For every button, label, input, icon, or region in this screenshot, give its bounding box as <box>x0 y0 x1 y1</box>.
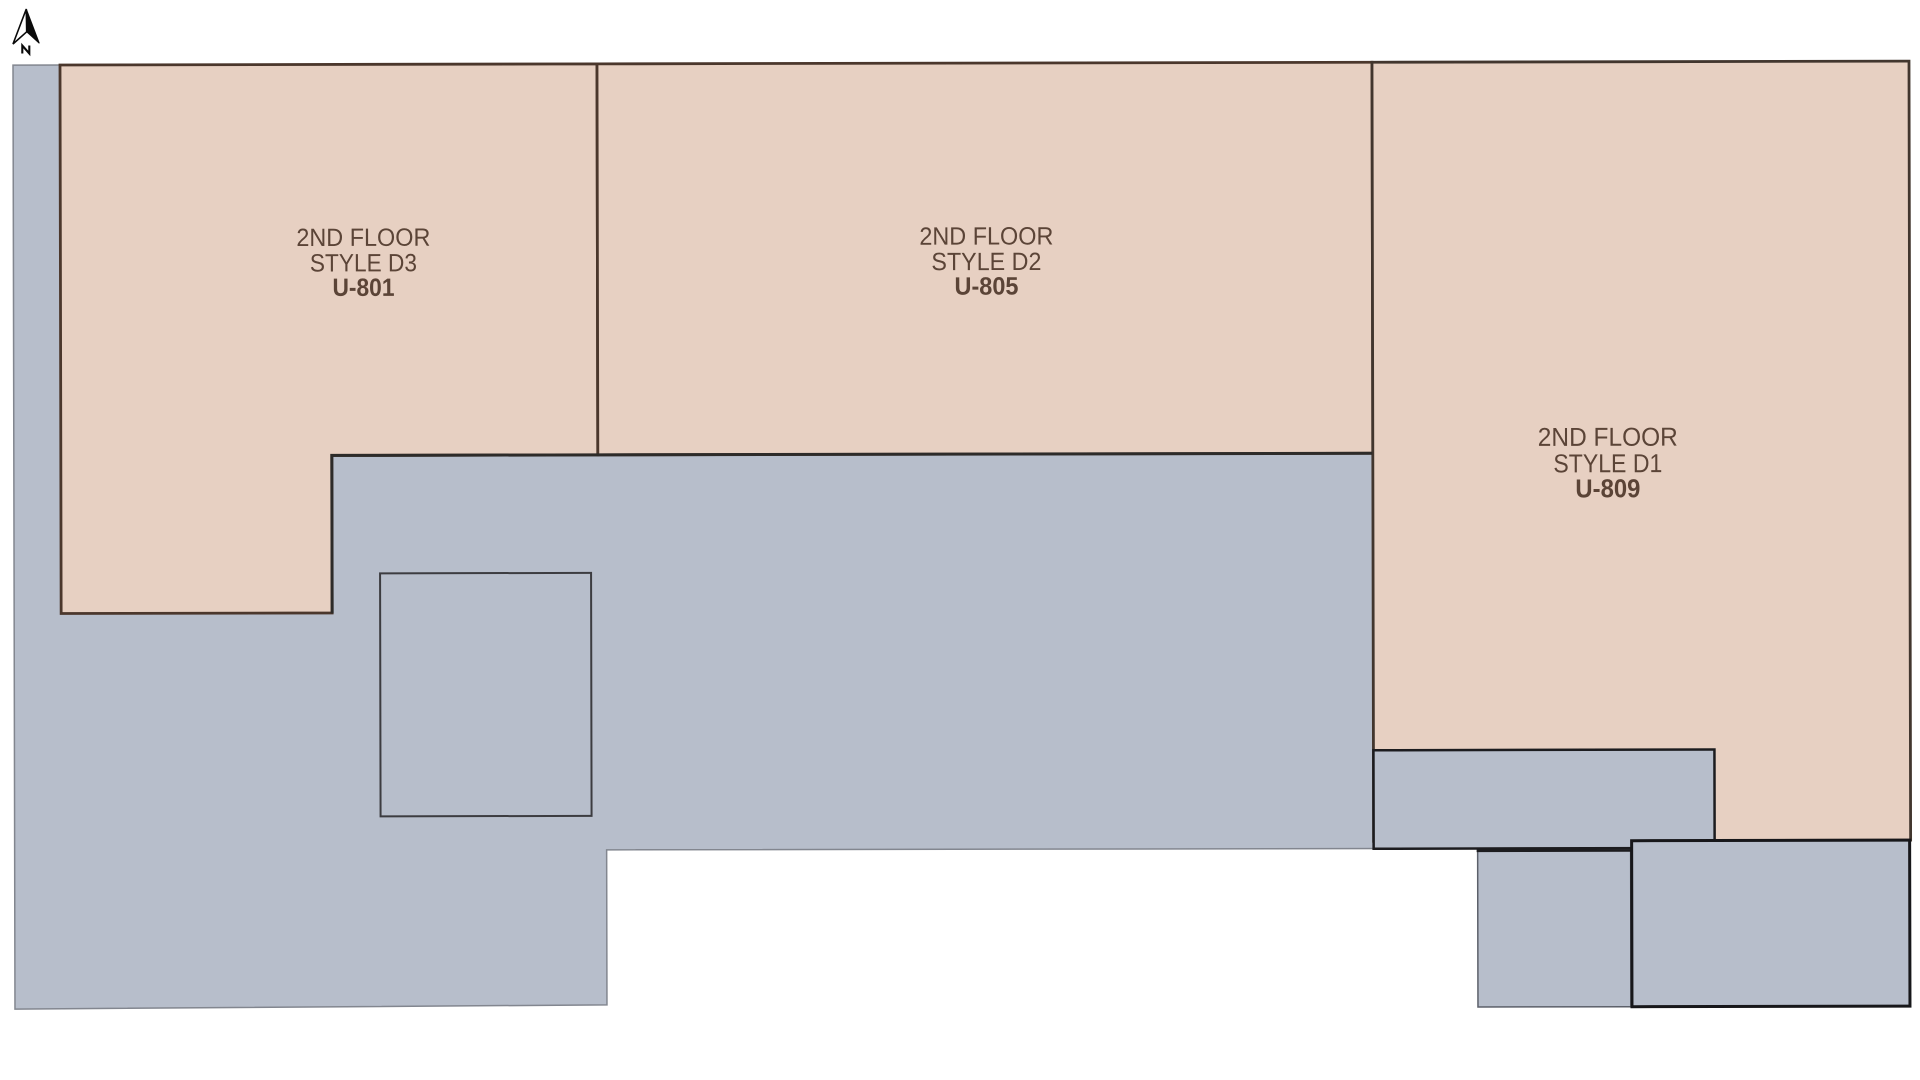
svg-text:2ND FLOOR: 2ND FLOOR <box>919 222 1053 250</box>
svg-text:U-801: U-801 <box>332 274 394 302</box>
svg-text:2ND FLOOR: 2ND FLOOR <box>296 224 430 252</box>
svg-text:U-809: U-809 <box>1575 473 1640 503</box>
svg-text:U-805: U-805 <box>954 272 1018 300</box>
